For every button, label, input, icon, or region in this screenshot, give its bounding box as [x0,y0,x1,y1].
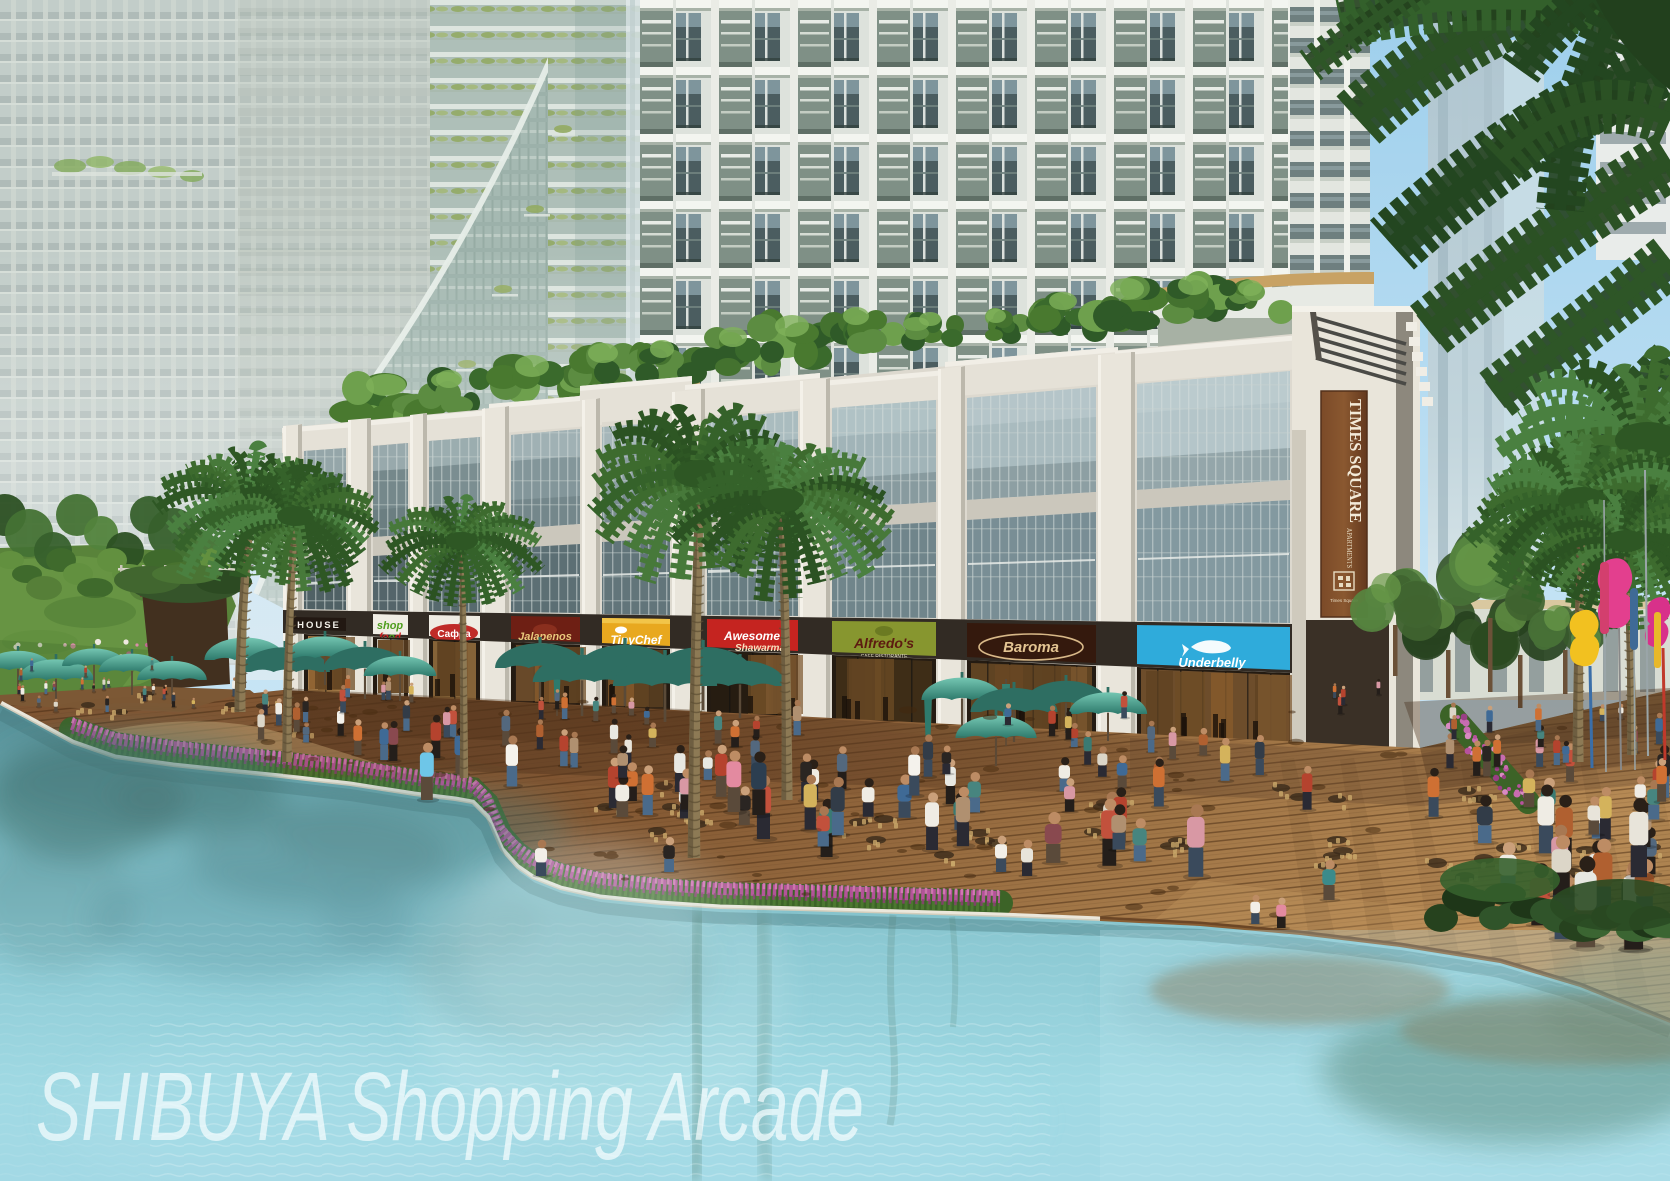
svg-text:TinyChef: TinyChef [610,633,662,647]
svg-text:TIMES SQUARE: TIMES SQUARE [1346,399,1365,523]
svg-text:Baroma: Baroma [1003,639,1059,656]
svg-text:Underbelly: Underbelly [1178,655,1246,670]
svg-text:Alfredo's: Alfredo's [853,635,914,651]
svg-text:shop: shop [377,620,404,632]
svg-text:HOUSE: HOUSE [297,620,341,631]
svg-text:Awesome: Awesome [723,629,780,643]
svg-text:APARTMENTS: APARTMENTS [1345,528,1353,568]
svg-text:SHIBUYA Shopping Arcade: SHIBUYA Shopping Arcade [36,1052,864,1161]
svg-text:Jalapenos: Jalapenos [518,631,572,643]
